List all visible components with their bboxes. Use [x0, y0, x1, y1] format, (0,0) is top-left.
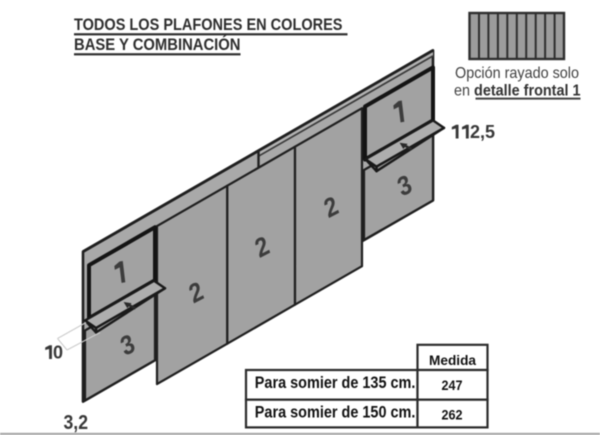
svg-text:Para somier de 150 cm.: Para somier de 150 cm.	[255, 403, 416, 422]
svg-text:Medida: Medida	[429, 353, 476, 368]
svg-text:TODOS LOS PLAFONES EN COLORES: TODOS LOS PLAFONES EN COLORES	[74, 15, 343, 34]
svg-text:Opción rayado solo: Opción rayado solo	[455, 65, 579, 82]
svg-text:en detalle frontal 1: en detalle frontal 1	[454, 83, 581, 100]
svg-text:BASE Y COMBINACIÓN: BASE Y COMBINACIÓN	[74, 35, 241, 54]
svg-text:262: 262	[442, 406, 463, 422]
svg-text:3,2: 3,2	[64, 412, 89, 434]
svg-text:247: 247	[442, 377, 463, 393]
svg-text:2,5: 2,5	[470, 122, 495, 142]
svg-text:Para somier de 135 cm.: Para somier de 135 cm.	[255, 373, 416, 392]
svg-text:0: 0	[53, 343, 63, 363]
